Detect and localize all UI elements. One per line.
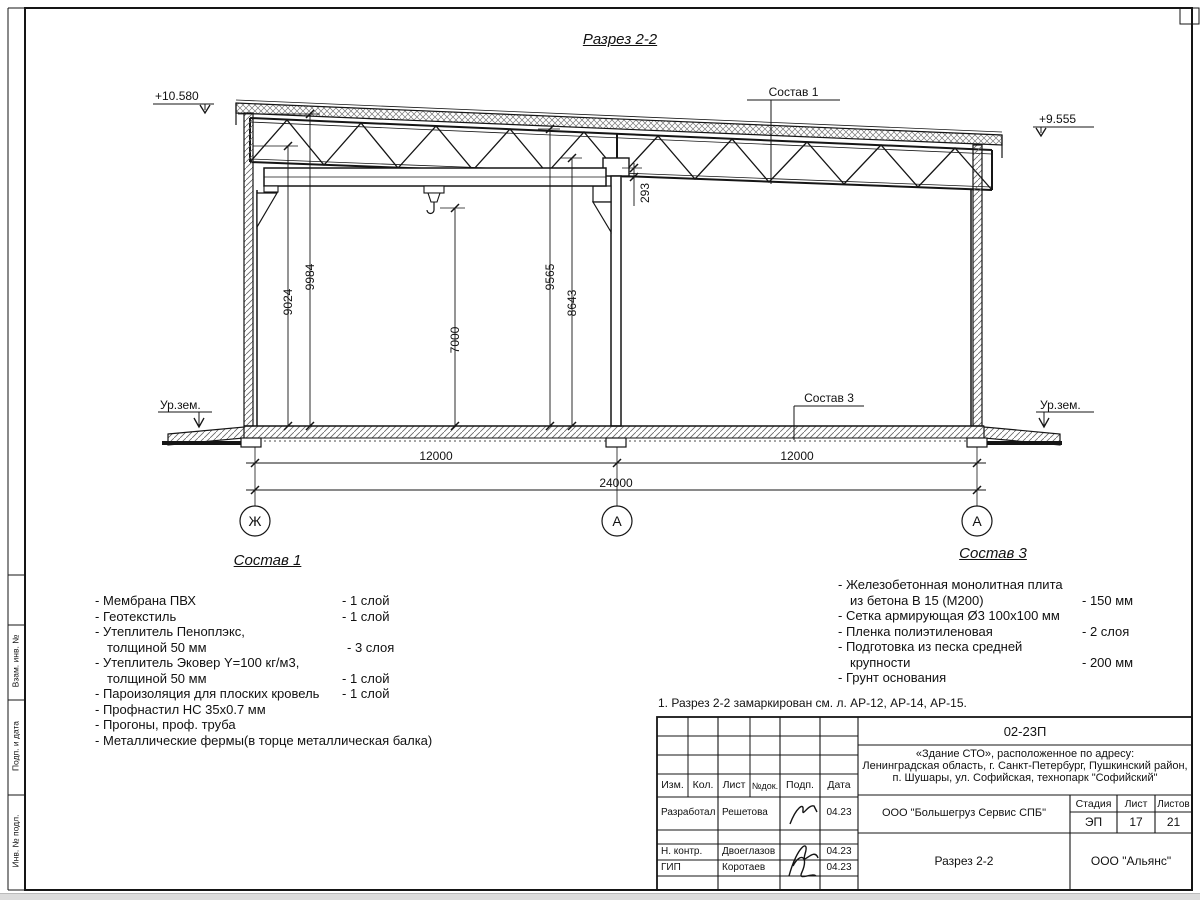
- stamp-date-ncontr: 04.23: [820, 846, 858, 857]
- list-item: - Прогоны, проф. труба: [95, 717, 455, 733]
- dim-total: 24000: [576, 476, 656, 490]
- sostav1-block: Состав 1 - Мембрана ПВХ- 1 слой - Геотек…: [95, 552, 455, 748]
- sostav1-list: - Мембрана ПВХ- 1 слой - Геотекстиль- 1 …: [95, 593, 455, 748]
- list-item: - Железобетонная монолитная плита: [838, 577, 1168, 593]
- side-label-podp: Подп. и дата: [11, 699, 21, 794]
- list-item: - Геотекстиль- 1 слой: [95, 609, 455, 625]
- stamp-header-data: Дата: [820, 779, 858, 791]
- sostav3-title: Состав 3: [838, 545, 1148, 562]
- stamp-header-kol: Кол.: [688, 779, 718, 791]
- stamp-date-developer: 04.23: [820, 807, 858, 818]
- corner-box: [1180, 8, 1199, 24]
- stamp-name-developer: Решетова: [722, 807, 768, 818]
- leader-floor-label: Состав 3: [794, 391, 864, 405]
- leader-lines: [747, 100, 864, 440]
- elevation-right: +9.555: [1039, 112, 1099, 126]
- list-item: - Металлические фермы(в торце металличес…: [95, 733, 455, 749]
- stamp-header-podp: Подп.: [780, 779, 820, 791]
- sostav3-list: - Железобетонная монолитная плита из бет…: [838, 577, 1168, 686]
- list-item: - Мембрана ПВХ- 1 слой: [95, 593, 455, 609]
- axis-bubble-a2: А: [962, 513, 992, 529]
- stamp-stage-label: Стадия: [1070, 798, 1117, 810]
- list-item: - Утеплитель Пеноплэкс,: [95, 624, 455, 640]
- stamp-role-gip: ГИП: [661, 862, 681, 873]
- stamp-role-developer: Разработал: [661, 807, 715, 818]
- stamp-firm: ООО "Альянс": [1070, 854, 1192, 868]
- stamp-doc-title: Разрез 2-2: [858, 854, 1070, 868]
- stamp-project-line2: Ленинградская область, г. Санкт-Петербур…: [858, 760, 1192, 772]
- axis-bubble-a1: А: [602, 513, 632, 529]
- stamp-sheet-value: 17: [1117, 815, 1155, 829]
- page-title: Разрез 2-2: [560, 31, 680, 48]
- list-item: толщиной 50 мм- 1 слой: [95, 671, 455, 687]
- stamp-stage-value: ЭП: [1070, 815, 1117, 829]
- hoist-trolley: [424, 186, 444, 193]
- dim-span2: 12000: [757, 449, 837, 463]
- dim-span1: 12000: [396, 449, 476, 463]
- stamp-date-gip: 04.23: [820, 862, 858, 873]
- dim-293: 293: [638, 173, 652, 213]
- list-item: - Сетка армирующая Ø3 100х100 мм: [838, 608, 1168, 624]
- dim-9565: 9565: [543, 247, 557, 307]
- list-item: толщиной 50 мм- 3 слоя: [95, 640, 455, 656]
- list-item: - Пленка полиэтиленовая- 2 слоя: [838, 624, 1168, 640]
- list-item: - Пароизоляция для плоских кровель- 1 сл…: [95, 686, 455, 702]
- note-text: 1. Разрез 2-2 замаркирован см. л. АР-12,…: [658, 696, 967, 710]
- list-item: из бетона В 15 (М200)- 150 мм: [838, 593, 1168, 609]
- middle-column: [593, 158, 629, 426]
- stamp-name-ncontr: Двоеглазов: [722, 846, 775, 857]
- ground-level-right: Ур.зем.: [1040, 398, 1098, 412]
- list-item: - Утеплитель Эковер Y=100 кг/м3,: [95, 655, 455, 671]
- side-label-inv: Инв. № подл.: [11, 794, 21, 889]
- list-item: - Грунт основания: [838, 670, 1168, 686]
- stamp-sheets-value: 21: [1155, 815, 1192, 829]
- crane-beam: [264, 168, 606, 214]
- stamp-project-line3: п. Шушары, ул. Софийская, технопарк "Соф…: [858, 772, 1192, 784]
- dim-9984: 9984: [303, 247, 317, 307]
- stamp-org: ООО "Большегруз Сервис СПБ": [858, 807, 1070, 819]
- signature-1: [790, 806, 817, 824]
- stamp-project-line1: «Здание СТО», расположенное по адресу:: [858, 748, 1192, 760]
- dim-9024: 9024: [281, 272, 295, 332]
- elevation-left: +10.580: [155, 89, 215, 103]
- list-item: - Профнастил НС 35х0.7 мм: [95, 702, 455, 718]
- hoist-body: [428, 193, 440, 202]
- right-wall: [971, 145, 982, 426]
- signature-2: [789, 846, 818, 877]
- ground-level-left: Ур.зем.: [160, 398, 214, 412]
- stamp-name-gip: Коротаев: [722, 862, 765, 873]
- stamp-doc-code: 02-23П: [858, 724, 1192, 739]
- stamp-role-ncontr: Н. контр.: [661, 846, 702, 857]
- dim-8643: 8643: [565, 273, 579, 333]
- signatures: [789, 806, 818, 877]
- leader-roof-label: Состав 1: [747, 85, 840, 99]
- stamp-sheets-label: Листов: [1155, 799, 1192, 810]
- stamp-header-ndok: №док.: [750, 781, 780, 791]
- drawing-sheet: Разрез 2-2 +10.580 +9.555 Состав 1 Соста…: [0, 0, 1200, 900]
- sostav3-block: Состав 3 - Железобетонная монолитная пли…: [838, 545, 1168, 686]
- screen-edge-strip: [0, 893, 1200, 900]
- dim-7000: 7000: [448, 310, 462, 370]
- axis-bubble-zh: Ж: [240, 513, 270, 529]
- sostav1-title: Состав 1: [95, 552, 440, 569]
- stamp-header-list: Лист: [718, 779, 750, 791]
- floor: [162, 426, 1062, 447]
- stamp-sheet-label: Лист: [1117, 798, 1155, 810]
- list-item: крупности- 200 мм: [838, 655, 1168, 671]
- side-label-vzam: Взам. инв. №: [11, 614, 21, 709]
- list-item: - Подготовка из песка средней: [838, 639, 1168, 655]
- stamp-header-izm: Изм.: [657, 779, 688, 791]
- hoist-hook: [427, 202, 434, 214]
